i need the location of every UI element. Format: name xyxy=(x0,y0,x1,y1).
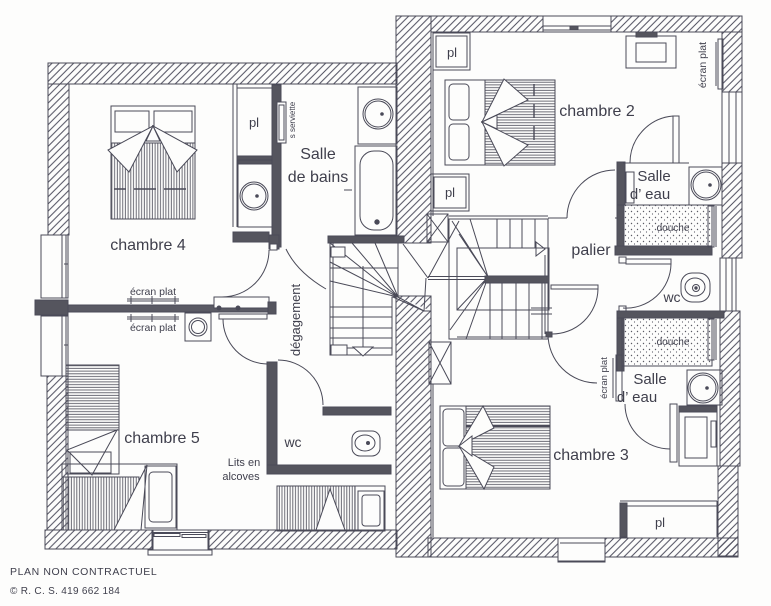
svg-text:douche: douche xyxy=(657,337,690,348)
svg-text:pl: pl xyxy=(445,185,455,200)
svg-text:pl: pl xyxy=(249,115,259,130)
svg-text:wc: wc xyxy=(662,289,680,305)
svg-text:dégagement: dégagement xyxy=(288,283,303,356)
svg-text:écran plat: écran plat xyxy=(130,286,176,298)
svg-text:chambre 4: chambre 4 xyxy=(110,237,186,254)
svg-text:s serviette: s serviette xyxy=(288,101,297,138)
svg-text:d’ eau: d’ eau xyxy=(617,389,657,406)
svg-text:chambre 5: chambre 5 xyxy=(124,430,200,447)
svg-text:Salle: Salle xyxy=(300,146,336,163)
svg-text:wc: wc xyxy=(283,434,301,450)
svg-text:palier: palier xyxy=(571,242,611,259)
svg-text:Lits en: Lits en xyxy=(228,457,260,469)
svg-text:chambre 3: chambre 3 xyxy=(553,447,629,464)
svg-text:PLAN NON CONTRACTUEL: PLAN NON CONTRACTUEL xyxy=(10,566,157,578)
svg-text:écran plat: écran plat xyxy=(130,322,176,334)
svg-text:pl: pl xyxy=(447,45,457,60)
svg-text:Salle: Salle xyxy=(637,168,670,185)
svg-text:pl: pl xyxy=(655,515,665,530)
svg-text:alcoves: alcoves xyxy=(222,471,260,483)
svg-text:écran plat: écran plat xyxy=(697,42,709,88)
svg-text:d’ eau: d’ eau xyxy=(630,186,670,203)
svg-text:écran plat: écran plat xyxy=(599,357,610,399)
svg-text:douche: douche xyxy=(657,223,690,234)
svg-text:chambre 2: chambre 2 xyxy=(559,103,635,120)
svg-text:© R. C. S. 419 662 184: © R. C. S. 419 662 184 xyxy=(10,586,120,597)
svg-text:Salle: Salle xyxy=(633,371,666,388)
svg-text:de bains: de bains xyxy=(288,169,349,186)
